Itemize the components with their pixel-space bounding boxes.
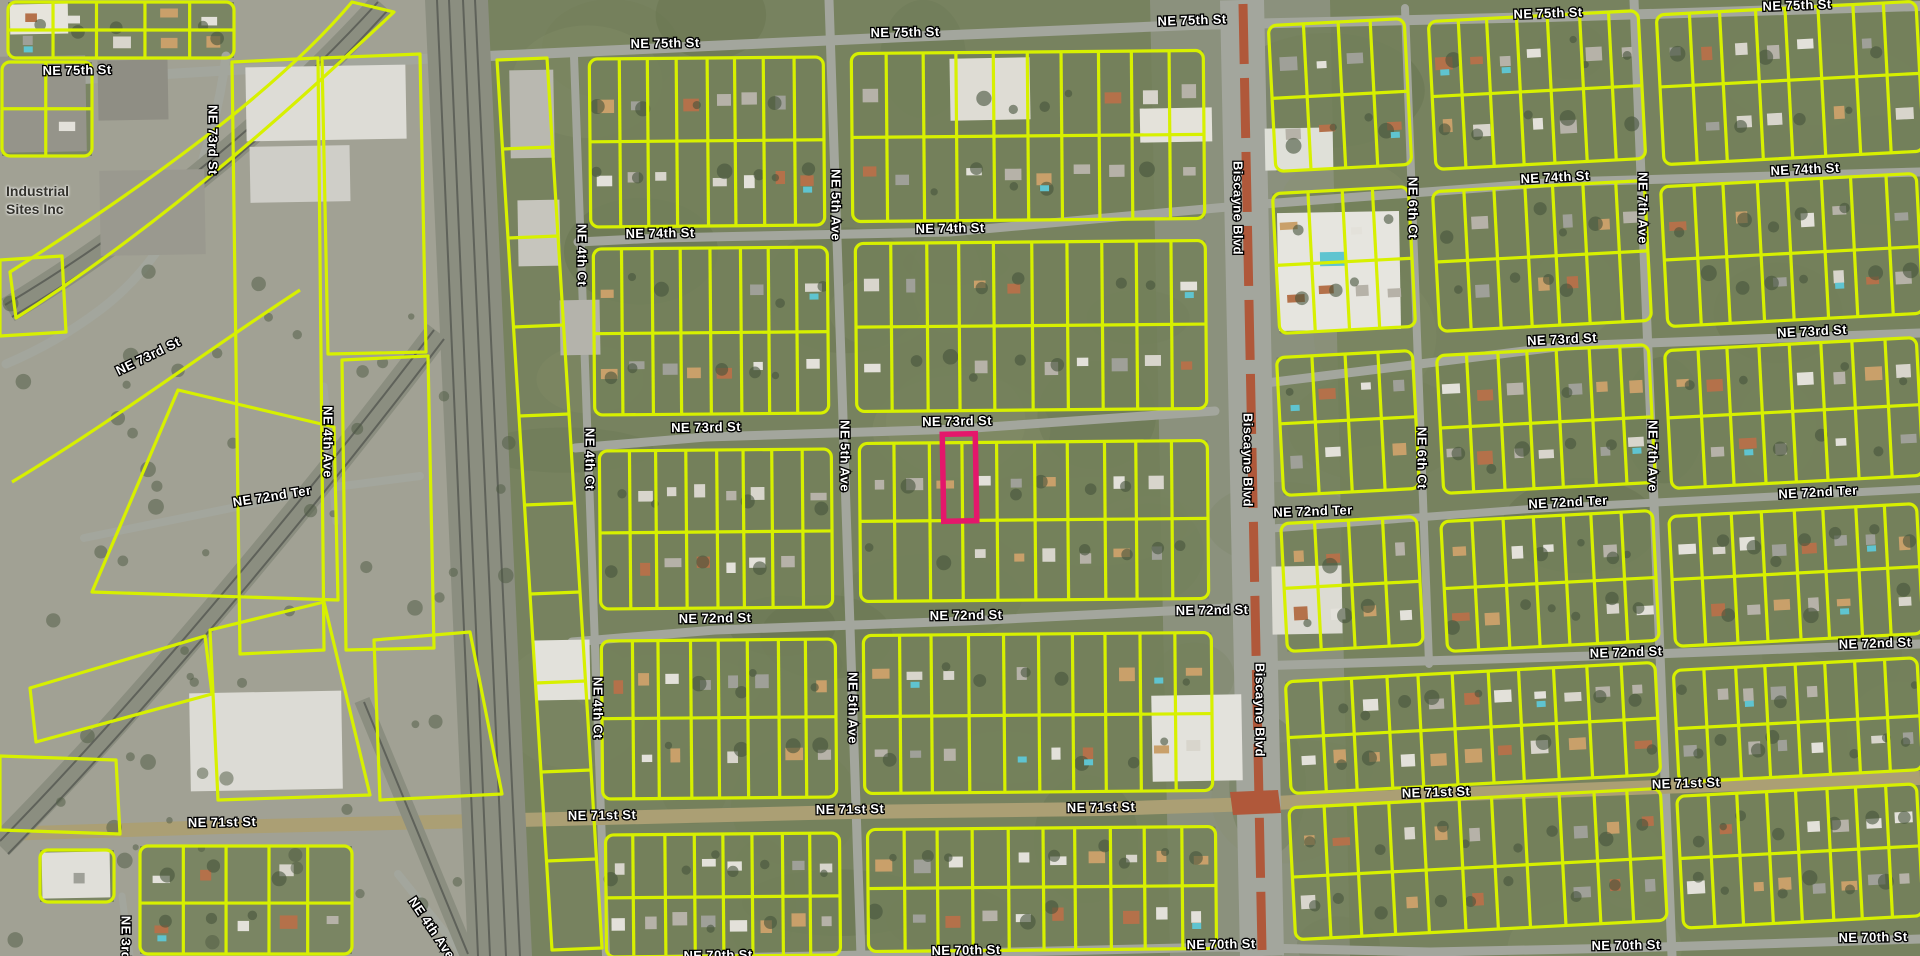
street-label: NE 4th Ct [574,224,589,286]
street-label: NE 75th St [42,62,112,78]
street-label: NE 75th St [630,35,700,51]
street-label: NE 71st St [1652,774,1721,791]
street-label: NE 74th St [625,225,695,241]
street-label: NE 3rd Ave [118,916,133,956]
street-label: NE 4th Ct [590,677,605,739]
street-label: NE 72nd St [1176,602,1249,618]
street-label: NE 73rd St [671,419,741,435]
street-label: NE 74th St [915,220,985,236]
street-label: NE 72nd St [679,610,752,626]
map-canvas[interactable]: NE 75th StNE 75th StNE 75th StNE 75th St… [0,0,1920,956]
street-label: NE 6th Ct [1405,177,1420,239]
street-label: Biscayne Blvd [1240,413,1255,507]
street-label: NE 72nd Ter [1273,502,1353,520]
street-label: NE 72nd St [930,607,1003,623]
street-label: NE 75th St [1157,11,1227,28]
street-label: NE 4th Ave [320,406,335,478]
street-label: NE 73rd St [922,413,992,429]
street-label: NE 71st St [188,814,257,830]
street-label: NE 71st St [568,807,637,823]
street-label: NE 70th St [1186,936,1256,952]
street-label: NE 75th St [870,24,940,40]
street-label: NE 5th Ave [828,169,843,241]
street-label: NE 72nd St [1589,643,1662,661]
street-label: Biscayne Blvd [1230,161,1245,255]
street-label: NE 7th Ave [1635,172,1650,244]
street-label: NE 71st St [1402,783,1471,800]
street-label: NE 70th St [931,942,1001,956]
street-label: NE 5th Ave [845,672,860,744]
street-label: NE 70th St [683,947,753,956]
street-label: NE 71st St [1067,799,1136,815]
street-label: Biscayne Blvd [1252,663,1267,757]
street-label: NE 72nd St [1838,634,1911,652]
street-label: NE 5th Ave [837,420,852,492]
street-label: NE 75th St [1762,0,1832,14]
street-label: NE 71st St [816,801,885,817]
street-label: NE 7th Ave [1645,420,1660,492]
street-label: NE 70th St [1838,929,1908,945]
aerial-parcel-map[interactable]: NE 75th StNE 75th StNE 75th StNE 75th St… [0,0,1920,956]
owner-label-line2: Sites Inc [6,201,64,217]
street-label: NE 4th Ct [582,428,597,490]
owner-label-line1: Industrial [6,183,69,199]
street-label: NE 6th Ct [1414,427,1429,489]
street-label: NE 73rd St [205,105,220,175]
street-label: NE 75th St [1513,4,1583,21]
street-label: NE 70th St [1591,937,1661,953]
